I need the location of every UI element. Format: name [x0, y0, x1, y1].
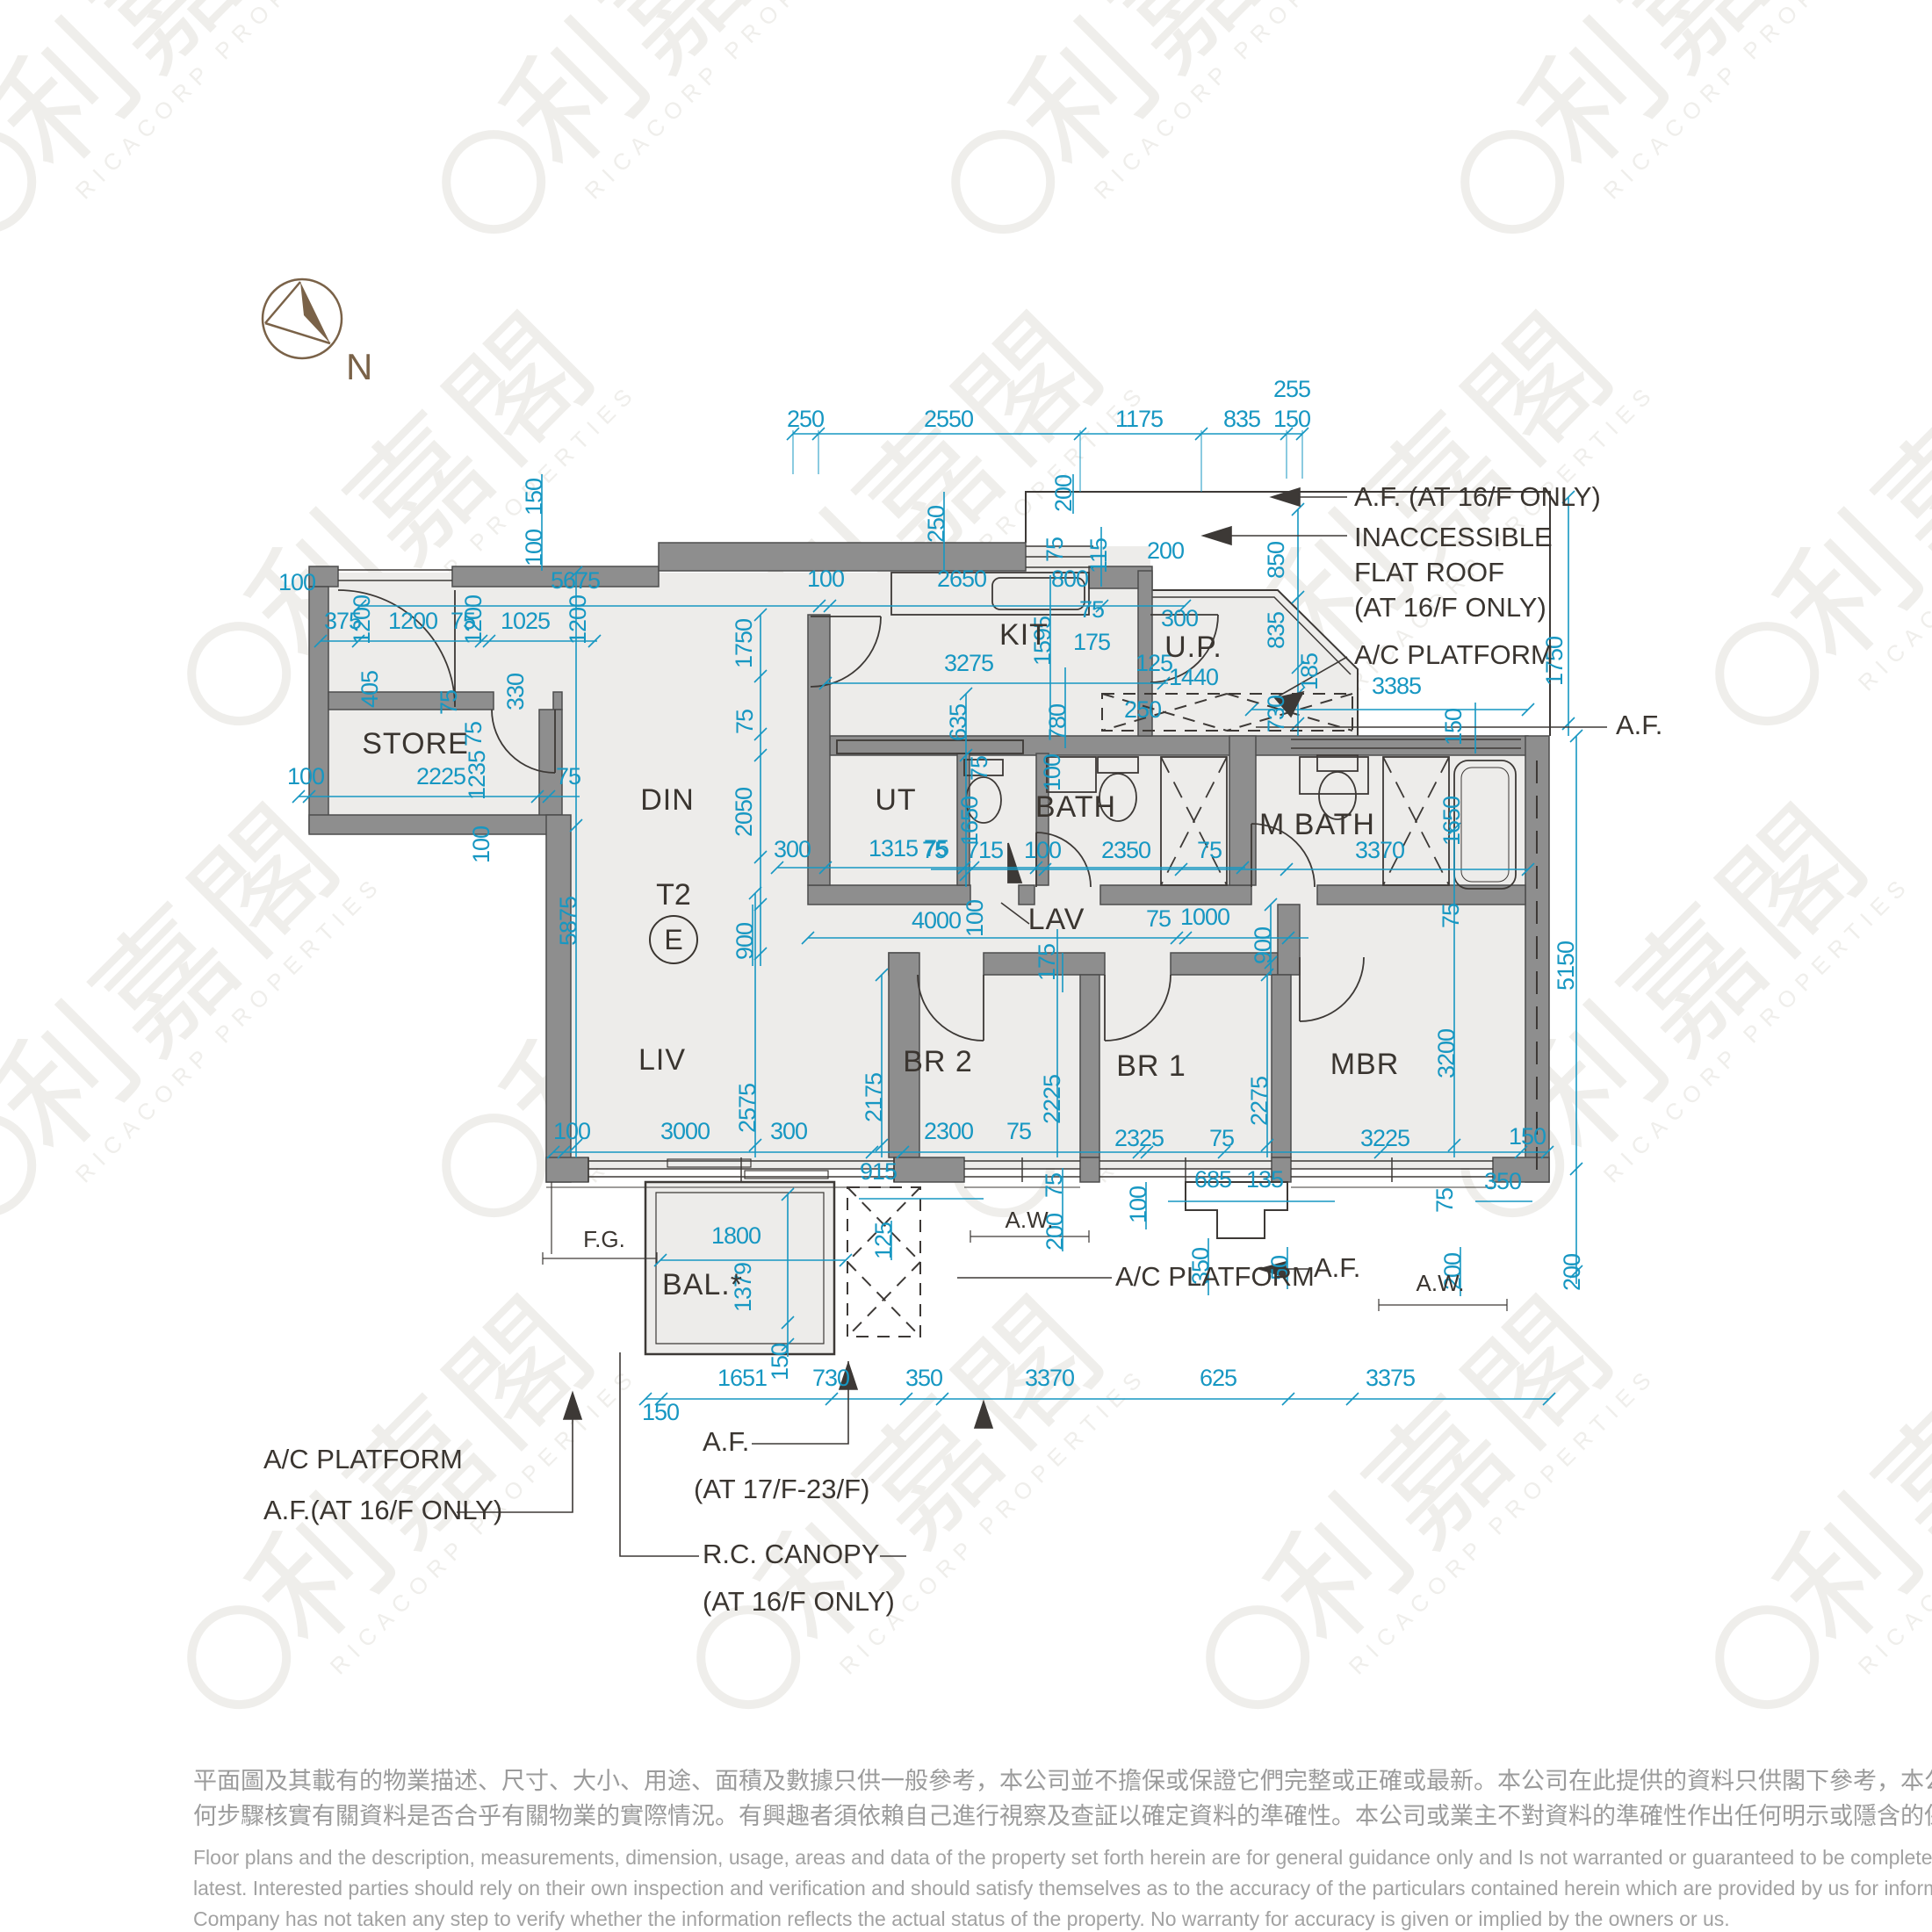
disclaimer-en-line1: Floor plans and the description, measure… [193, 1842, 1739, 1873]
dimension-label: 115 [1085, 538, 1112, 573]
dimension-label: 1800 [711, 1222, 761, 1249]
watermark-cjk: 利嘉閣 [0, 776, 371, 1179]
room-label: BR 1 [1116, 1049, 1186, 1083]
room-label: BAL.* [662, 1268, 743, 1301]
floor-plan-page: 利嘉閣RICACORP PROPERTIES利嘉閣RICACORP PROPER… [0, 0, 1932, 1932]
dimension-label: 5150 [1553, 941, 1579, 991]
annotation-label: R.C. CANOPY [703, 1539, 880, 1569]
dimension-label: 3225 [1360, 1125, 1409, 1151]
watermark-unit: 利嘉閣RICACORP PROPERTIES [1425, 0, 1916, 278]
dimension-label: 100 [807, 566, 844, 592]
dimension-label: 915 [860, 1158, 897, 1185]
dimension-label: 800 [1051, 566, 1088, 592]
dimension-label: 75 [966, 756, 992, 781]
annotation-label: INACCESSIBLE [1354, 522, 1553, 552]
room-label: KIT [999, 618, 1049, 652]
dimension-label: 150 [521, 479, 547, 515]
dimension-label: 5675 [551, 567, 600, 594]
dimension-label: 1315 [869, 835, 918, 861]
room-label: BATH [1035, 790, 1116, 824]
dimension-label: 2050 [731, 788, 757, 837]
watermark-unit: 利嘉閣RICACORP PROPERTIES [0, 0, 388, 278]
dimension-label: 125 [870, 1222, 897, 1259]
dimension-label: 5875 [555, 897, 581, 946]
dimension-label: 635 [945, 704, 971, 741]
dimension-label: 835 [1223, 406, 1260, 432]
dimension-label: 75 [1079, 596, 1104, 623]
room-label: F.G. [583, 1226, 625, 1252]
dimension-label: 200 [1559, 1254, 1585, 1291]
dimension-label: 2300 [924, 1118, 973, 1144]
dimension-label: 175 [1034, 944, 1060, 981]
dimension-label: 150 [767, 1344, 793, 1381]
watermark-unit: 利嘉閣RICACORP PROPERTIES [0, 772, 388, 1263]
dimension-label: 1025 [501, 608, 550, 634]
annotation-label: (AT 17/F-23/F) [694, 1474, 869, 1504]
room-label: A.W. [1006, 1207, 1054, 1233]
dimension-label: 730 [1263, 696, 1289, 732]
room-label: MBR [1330, 1048, 1400, 1081]
dimension-label: 2325 [1114, 1125, 1164, 1151]
dimension-label: 255 [1273, 376, 1310, 402]
dimension-label: 200 [1147, 537, 1184, 564]
dimension-label: 75 [1431, 1188, 1458, 1213]
dimension-label: 850 [1263, 542, 1289, 579]
dimension-label: 2175 [861, 1073, 887, 1122]
dimension-label: 250 [1124, 696, 1161, 723]
dimension-label: 100 [287, 763, 324, 789]
dimension-label: 200 [1050, 475, 1077, 512]
disclaimer-zh-line2: 何步驟核實有關資料是否合乎有關物業的實際情況。有興趣者須依賴自己進行視察及查証以… [193, 1799, 1739, 1834]
annotation-label: (AT 16/F ONLY) [1354, 592, 1546, 623]
dimension-label: 150 [1440, 709, 1467, 746]
annotation-label: A.F.(AT 16/F ONLY) [263, 1495, 502, 1525]
dimension-label: 900 [1250, 927, 1276, 964]
dimension-label: 1000 [1180, 904, 1229, 930]
watermark-unit: 利嘉閣RICACORP PROPERTIES [916, 0, 1407, 278]
dimension-label: 75 [1197, 837, 1222, 863]
annotation-label: A/C PLATFORM [1115, 1261, 1315, 1292]
tower-label: T2 [656, 878, 691, 912]
dimension-label: 2225 [1039, 1075, 1065, 1124]
annotation-label: A/C PLATFORM [1354, 639, 1554, 670]
dimension-label: 4000 [912, 907, 961, 934]
dimension-label: 405 [357, 671, 383, 708]
dimension-label: 2275 [1246, 1077, 1272, 1126]
annotation-label: A.F. [703, 1426, 749, 1457]
dimension-label: 1200 [349, 595, 375, 645]
watermark-unit: 利嘉閣RICACORP PROPERTIES [1680, 280, 1932, 771]
dimension-label: 75 [732, 710, 758, 734]
dimension-label: 2550 [924, 406, 973, 432]
dimension-label: 75 [1209, 1125, 1234, 1151]
dimension-label: 75 [436, 690, 462, 715]
dimension-label: 625 [1200, 1365, 1236, 1391]
dimension-label: 250 [787, 406, 824, 432]
watermark-unit: 利嘉閣RICACORP PROPERTIES [1171, 1264, 1662, 1755]
room-label: UT [875, 783, 916, 817]
floor-areas [318, 546, 1528, 1354]
annotation-label: A.F. [1314, 1252, 1360, 1283]
dimension-label: 1200 [388, 608, 437, 634]
disclaimer-block: 平面圖及其載有的物業描述、尺寸、大小、用途、面積及數據只供一般參考，本公司並不擔… [193, 1763, 1739, 1932]
dimension-label: 715 [966, 837, 1003, 863]
dimension-label: 75 [1041, 1173, 1067, 1198]
dimension-label: 135 [1246, 1166, 1283, 1193]
dimension-label: 1175 [1115, 406, 1163, 432]
dimension-label: 1750 [731, 619, 757, 668]
annotation-label: A.F. (AT 16/F ONLY) [1354, 481, 1601, 512]
dimension-label: 150 [642, 1399, 679, 1425]
disclaimer-en-line2: latest. Interested parties should rely o… [193, 1873, 1739, 1904]
annotation-label: A/C PLATFORM [263, 1444, 463, 1474]
dimension-label: 350 [905, 1365, 942, 1391]
watermark-unit: 利嘉閣RICACORP PROPERTIES [1680, 1264, 1932, 1755]
dimension-label: 330 [502, 674, 529, 710]
dimension-label: 100 [278, 569, 315, 595]
dimension-label: 835 [1263, 612, 1289, 649]
dimension-label: 3000 [660, 1118, 710, 1144]
disclaimer-zh-line1: 平面圖及其載有的物業描述、尺寸、大小、用途、面積及數據只供一般參考，本公司並不擔… [193, 1763, 1739, 1799]
dimension-label: 75 [1438, 904, 1464, 928]
dimension-label: 250 [923, 506, 949, 543]
dimension-label: 1200 [460, 595, 487, 645]
dimension-label: 75 [1146, 905, 1171, 932]
annotation-label: (AT 16/F ONLY) [703, 1586, 895, 1617]
room-label: U.P. [1164, 631, 1222, 664]
watermark-cjk: 利嘉閣 [1242, 1268, 1644, 1670]
dimension-label: 150 [1509, 1123, 1546, 1150]
dimension-label: 730 [812, 1365, 849, 1391]
compass-north-label: N [346, 346, 372, 387]
dimension-label: 75 [556, 763, 580, 789]
dimension-label: 3370 [1025, 1365, 1074, 1391]
dimension-label: 100 [468, 826, 494, 863]
dimension-label: 2225 [416, 763, 465, 789]
room-label: LIV [638, 1043, 686, 1077]
dimension-label: 3200 [1433, 1029, 1460, 1078]
room-label: A.W. [1417, 1270, 1465, 1296]
room-label: BR 2 [903, 1045, 973, 1078]
annotation-label: FLAT ROOF [1354, 557, 1504, 588]
dimension-label: 100 [553, 1118, 590, 1144]
dimension-label: 900 [732, 923, 758, 960]
dimension-label: 3275 [944, 650, 993, 676]
dimension-label: 3375 [1366, 1365, 1415, 1391]
dimension-label: 300 [774, 836, 811, 862]
dimension-label: 100 [1125, 1186, 1151, 1223]
dimension-label: 185 [1296, 653, 1323, 690]
dimension-label: 2575 [734, 1084, 761, 1133]
dimension-label: 1650 [1438, 797, 1465, 846]
room-label: STORE [362, 727, 469, 761]
disclaimer-en-line3: Company has not taken any step to verify… [193, 1904, 1739, 1932]
dimension-label: 300 [770, 1118, 807, 1144]
room-label: M BATH [1259, 808, 1375, 841]
dimension-label: 175 [1073, 629, 1110, 655]
dimension-label: 100 [1024, 837, 1061, 863]
dimension-label: 1651 [717, 1365, 767, 1391]
dimension-label: 100 [521, 530, 547, 566]
compass: N [263, 279, 372, 387]
dimension-label: 780 [1044, 704, 1071, 741]
dimension-label: 3385 [1372, 673, 1421, 699]
dimension-label: 1440 [1169, 664, 1218, 690]
dimension-label: 685 [1194, 1166, 1231, 1193]
dimension-label: 150 [1273, 406, 1310, 432]
flat-label: E [664, 924, 682, 955]
floor-plan-drawing: 利嘉閣RICACORP PROPERTIES利嘉閣RICACORP PROPER… [0, 0, 1932, 1932]
dimension-label: 2350 [1101, 837, 1150, 863]
dimension-label: 350 [1484, 1168, 1521, 1194]
dimension-label: 1200 [565, 595, 591, 645]
dimension-label: 100 [1039, 754, 1065, 791]
dimension-label: 75 [1006, 1118, 1031, 1144]
dimension-label: 300 [1161, 605, 1198, 631]
dimension-label: 75 [1042, 537, 1068, 562]
dimension-label: 2650 [937, 566, 986, 592]
dimension-label: 75 [922, 837, 947, 863]
room-label: DIN [640, 783, 695, 817]
annotation-label: A.F. [1616, 710, 1662, 740]
room-label: LAV [1028, 903, 1085, 936]
watermark-unit: 利嘉閣RICACORP PROPERTIES [407, 0, 898, 278]
compass-needle-icon [300, 282, 330, 343]
dimension-label: 100 [962, 900, 988, 937]
